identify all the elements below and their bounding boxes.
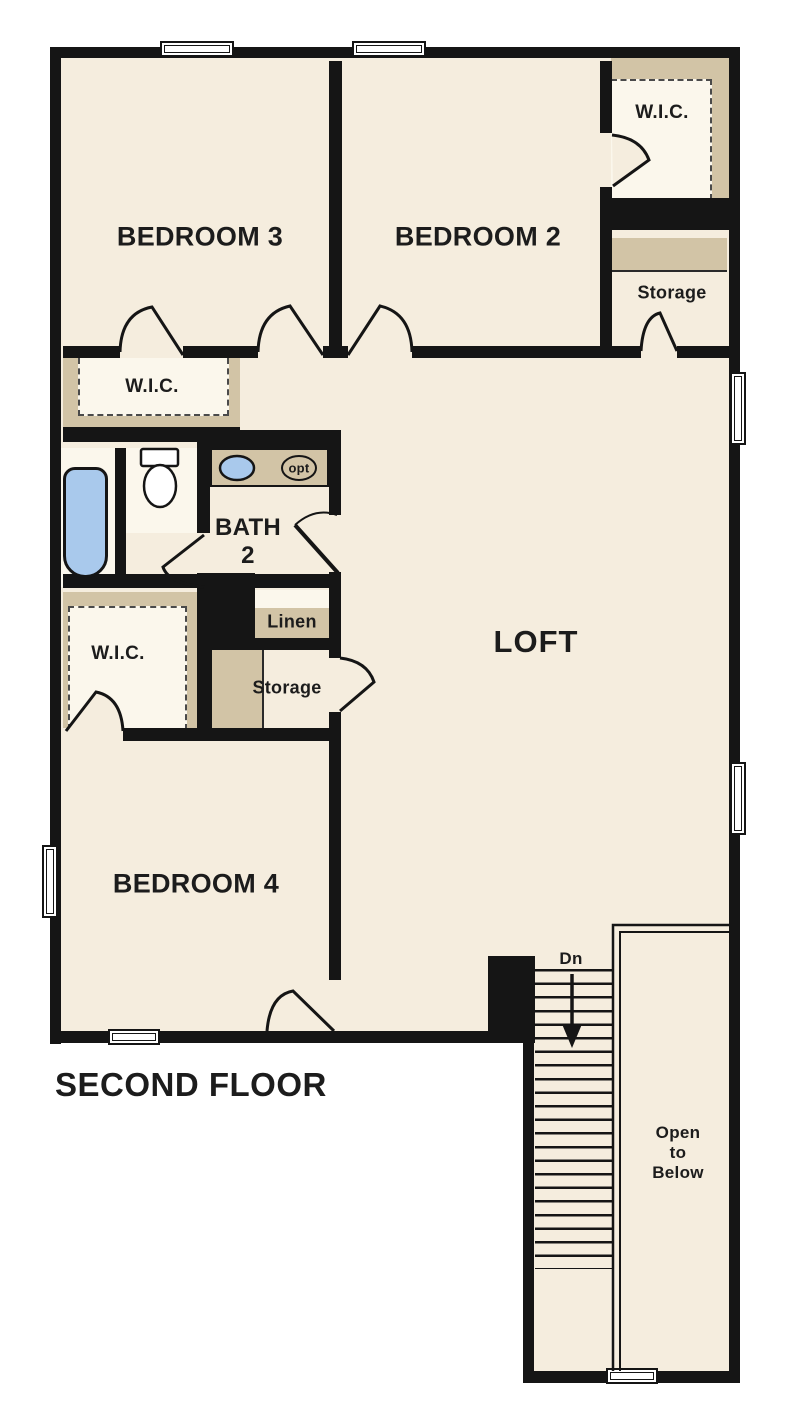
stairs-dn-label: Dn: [559, 949, 582, 969]
wall: [197, 430, 341, 448]
wall: [63, 346, 120, 358]
room-label-loft: LOFT: [494, 624, 579, 660]
wall: [323, 346, 348, 358]
wall: [600, 230, 612, 346]
room-label-wic-lower-left: W.I.C.: [91, 643, 145, 665]
wall: [329, 712, 341, 980]
window: [730, 372, 746, 445]
wall: [600, 198, 729, 230]
open-to-below-line1: Open: [652, 1123, 704, 1143]
window: [160, 41, 234, 57]
floor-plan-geometry: [0, 0, 810, 1417]
room-label-bedroom2: BEDROOM 2: [395, 222, 561, 253]
window: [108, 1029, 160, 1045]
wall: [329, 448, 341, 515]
room-label-bedroom4: BEDROOM 4: [113, 869, 279, 900]
room-label-linen: Linen: [267, 612, 317, 633]
bathtub: [63, 467, 108, 578]
bath-label-line2: 2: [215, 542, 281, 570]
window: [352, 41, 426, 57]
room-label-storage-top-right: Storage: [637, 283, 706, 304]
wall: [729, 47, 740, 1383]
optional-sink-label: opt: [288, 461, 309, 476]
wall: [488, 956, 535, 1040]
wic-top-right-inner: [611, 79, 712, 200]
window: [730, 762, 746, 835]
toilet-room-floor: [126, 448, 197, 533]
bath-label-line1: BATH: [215, 514, 281, 542]
open-to-below-line2: to: [652, 1143, 704, 1163]
bathroom-vanity: [210, 448, 329, 487]
window: [42, 845, 58, 918]
wic-top-right-shelf-side: [710, 58, 729, 198]
wall: [123, 728, 341, 741]
linen-alcove: [255, 590, 329, 608]
storage-upper-shelf: [612, 238, 727, 272]
wall: [523, 1031, 534, 1383]
wall: [197, 638, 341, 650]
room-label-bedroom3: BEDROOM 3: [117, 222, 283, 253]
wall: [183, 346, 258, 358]
stair-treads: [535, 969, 613, 1269]
floor-plan: BEDROOM 3 BEDROOM 2 W.I.C. Storage W.I.C…: [0, 0, 810, 1417]
wall: [677, 346, 729, 358]
room-label-bath: BATH 2: [215, 514, 281, 570]
wall: [115, 448, 126, 587]
room-label-storage-hall: Storage: [252, 678, 321, 699]
wall: [600, 187, 612, 198]
floor-title: SECOND FLOOR: [55, 1066, 327, 1104]
window: [606, 1368, 658, 1384]
wall: [600, 61, 612, 133]
room-label-wic-top-right: W.I.C.: [635, 102, 689, 124]
wall: [412, 346, 641, 358]
wall: [63, 574, 329, 588]
open-to-below-label: Open to Below: [652, 1123, 704, 1183]
room-label-wic-mid-left: W.I.C.: [125, 376, 179, 398]
wall: [197, 448, 210, 533]
wic-lower-left-inner: [68, 606, 187, 730]
open-to-below-line3: Below: [652, 1163, 704, 1183]
wall: [329, 61, 342, 346]
